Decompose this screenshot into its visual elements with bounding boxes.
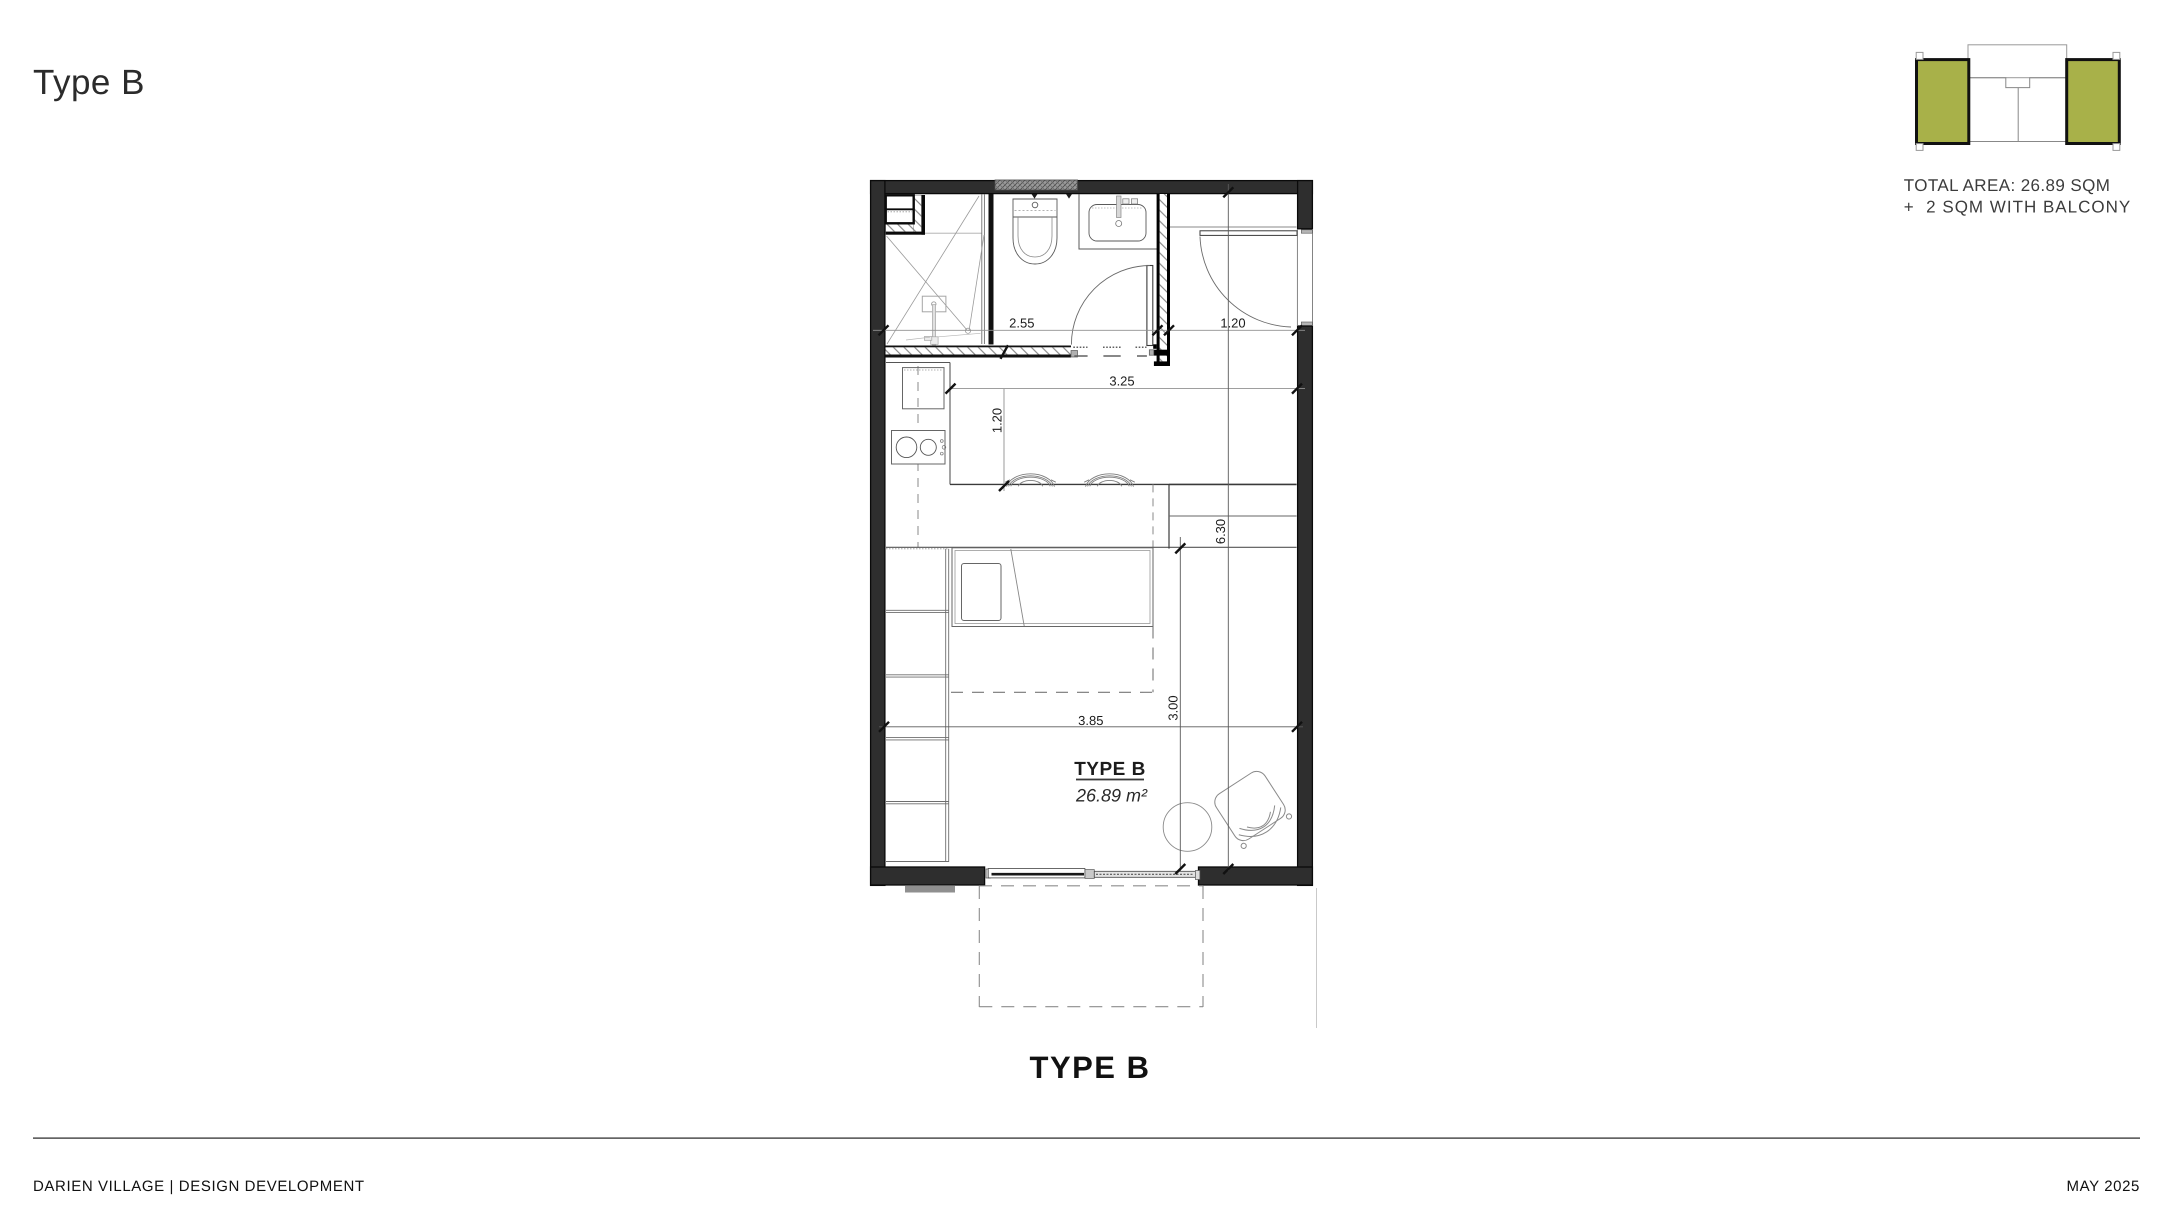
svg-text:6.30: 6.30: [1213, 519, 1228, 544]
svg-text:MAY 2025: MAY 2025: [2067, 1178, 2140, 1195]
svg-text:1.20: 1.20: [990, 408, 1005, 433]
svg-text:2.55: 2.55: [1009, 316, 1034, 331]
svg-text:3.85: 3.85: [1078, 713, 1103, 728]
svg-text:TYPE B: TYPE B: [1030, 1050, 1151, 1085]
svg-text:TOTAL AREA: 26.89 SQM: TOTAL AREA: 26.89 SQM: [1904, 176, 2111, 195]
svg-text:3.00: 3.00: [1166, 695, 1181, 720]
svg-text:DARIEN VILLAGE | DESIGN DEVELO: DARIEN VILLAGE | DESIGN DEVELOPMENT: [33, 1178, 365, 1195]
svg-text:3.25: 3.25: [1109, 373, 1134, 388]
svg-text:TYPE B: TYPE B: [1074, 759, 1146, 780]
svg-text:+ 2 SQM WITH BALCONY: + 2 SQM WITH BALCONY: [1904, 197, 2131, 216]
svg-text:1.20: 1.20: [1220, 316, 1245, 331]
svg-text:26.89 m²: 26.89 m²: [1075, 786, 1148, 806]
svg-text:Type B: Type B: [33, 63, 145, 102]
